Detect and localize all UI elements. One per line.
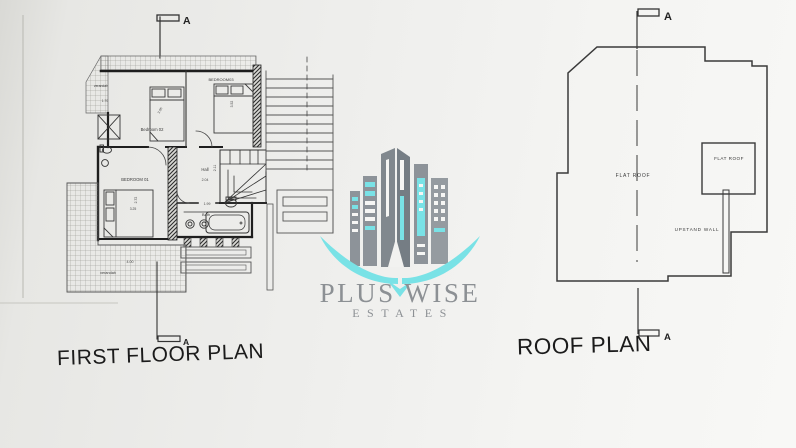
dim-hall-depth: 2.11: [213, 165, 217, 172]
label-bedroom2: Bedroom 02: [141, 127, 164, 132]
upstand-wall-element: [723, 190, 729, 273]
roof-outline: [557, 47, 767, 281]
wall-column-bedroom1: [168, 147, 177, 240]
bathtub: [206, 212, 249, 233]
label-flat-roof-small: FLAT ROOF: [714, 156, 744, 161]
section-letter-top: A: [183, 15, 191, 27]
dim-bath: 1.99: [204, 202, 211, 206]
right-slats: [266, 57, 333, 290]
wall-column-right: [253, 65, 261, 147]
dim-bedroom2: 3.05: [157, 107, 164, 115]
buildings-icon: [350, 148, 448, 267]
label-verandah-top: verandah: [94, 84, 108, 88]
staircase: [220, 150, 266, 203]
drawing-svg: A: [0, 0, 796, 448]
label-flat-roof-main: FLAT ROOF: [616, 173, 651, 179]
first-floor-plan: A: [57, 15, 333, 370]
first-floor-plan-title: FIRST FLOOR PLAN: [57, 340, 265, 370]
section-marker-a-top-icon-roof: A: [637, 9, 672, 49]
brand-subtitle: ESTATES: [352, 306, 454, 320]
label-upstand-wall: UPSTAND WALL: [675, 227, 720, 232]
roof-plan-title: ROOF PLAN: [517, 331, 652, 360]
label-bedroom1: BEDROOM 01: [121, 177, 149, 182]
bed-bedroom3: [214, 84, 253, 133]
dim-bedroom1-depth: 2.72: [134, 197, 138, 204]
verandah-top-band: [101, 56, 256, 70]
dim-hall-width: 2.04: [202, 178, 209, 182]
bed-bedroom2: [150, 87, 184, 141]
dim-bedroom3: 3.52: [230, 101, 234, 108]
label-hall: Hall: [201, 167, 208, 172]
section-marker-a-top-icon: A: [157, 15, 191, 58]
brand-name: PLUS WISE: [320, 278, 481, 308]
roof-plan: A FLAT ROOF FLAT ROOF UPSTAND WALL A ROO…: [517, 9, 767, 360]
bed-bedroom1: [104, 190, 153, 237]
label-verandah-bottom: verandah: [100, 271, 116, 275]
flat-roof-small-box: [702, 143, 755, 194]
watermark-logo: PLUS WISE ESTATES: [320, 148, 481, 320]
section-letter-roof-top: A: [664, 11, 672, 23]
dim-verandah-bottom: 4.00: [127, 260, 134, 264]
balcony-piers: [181, 238, 251, 273]
dim-bedroom1-width: 3.25: [130, 207, 137, 211]
label-bedroom3: BEDROOM03: [208, 77, 234, 82]
scanned-drawing-page: A: [0, 0, 796, 448]
section-letter-roof-bottom: A: [664, 332, 671, 343]
dim-verandah-top: 1.70: [102, 99, 109, 103]
label-bath: Bath: [202, 212, 210, 217]
